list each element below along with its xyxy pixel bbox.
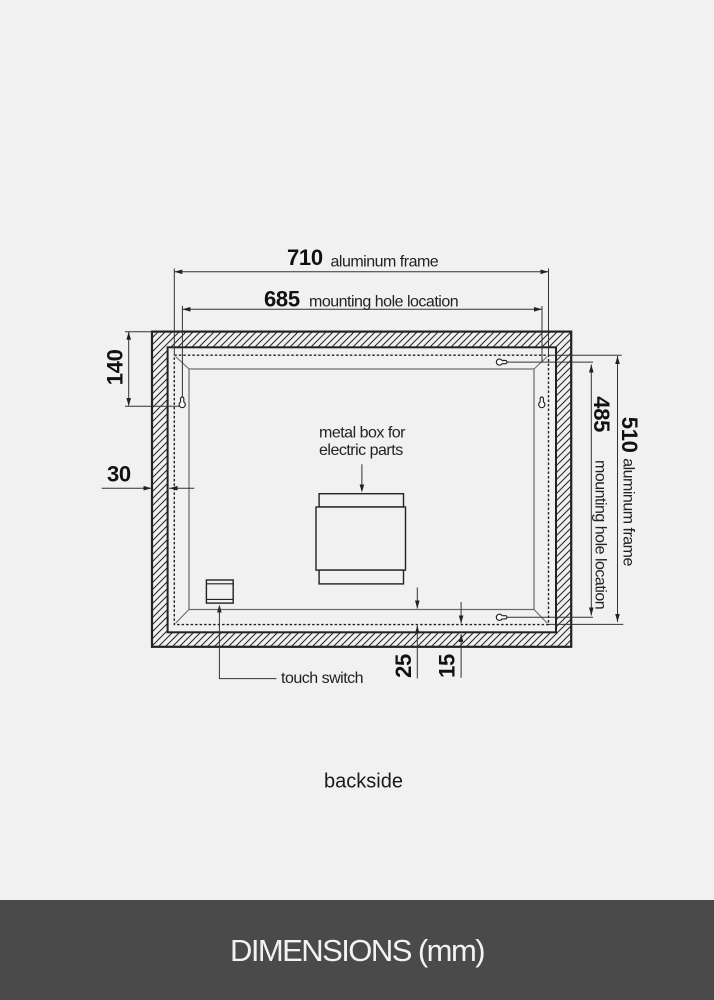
svg-text:140: 140 [103, 349, 128, 385]
svg-text:510: 510 [617, 417, 642, 453]
svg-text:aluminum frame: aluminum frame [331, 254, 439, 271]
svg-text:touch switch: touch switch [281, 670, 363, 687]
svg-text:685: 685 [264, 287, 300, 312]
svg-text:DIMENSIONS (mm): DIMENSIONS (mm) [230, 933, 484, 968]
svg-text:15: 15 [434, 654, 459, 678]
svg-text:710: 710 [287, 245, 323, 270]
svg-text:metal box for: metal box for [319, 425, 406, 442]
svg-text:485: 485 [589, 396, 614, 432]
svg-text:mounting hole location: mounting hole location [309, 294, 458, 311]
svg-text:electric parts: electric parts [319, 442, 403, 459]
svg-text:25: 25 [391, 654, 416, 678]
svg-text:30: 30 [107, 462, 131, 487]
svg-text:mounting hole location: mounting hole location [592, 460, 609, 609]
svg-text:backside: backside [324, 771, 403, 793]
svg-text:aluminum frame: aluminum frame [620, 458, 637, 566]
